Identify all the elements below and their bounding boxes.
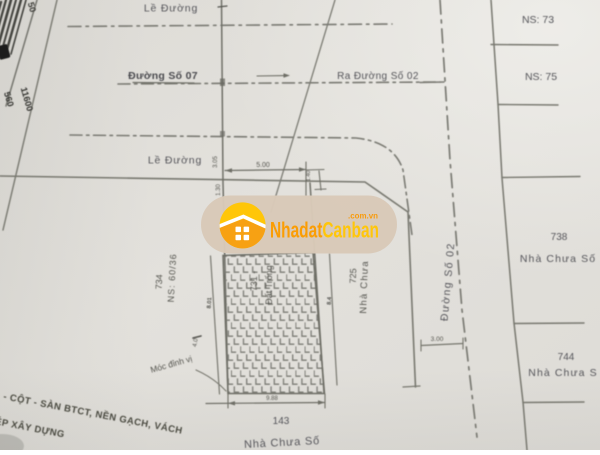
- svg-text:1.40: 1.40: [306, 171, 312, 182]
- svg-text:Nhà Chưa S: Nhà Chưa S: [528, 367, 597, 379]
- svg-text:143: 143: [273, 416, 290, 427]
- svg-text:Đất Trống: Đất Trống: [264, 265, 274, 305]
- svg-text:Nhà Chưa Số: Nhà Chưa Số: [520, 253, 596, 265]
- svg-text:1.30: 1.30: [216, 184, 222, 196]
- svg-text:Nhà Chưa: Nhà Chưa: [358, 260, 371, 314]
- svg-text:Ra Đường Số 02: Ra Đường Số 02: [337, 70, 419, 82]
- svg-text:738: 738: [551, 232, 568, 243]
- svg-text:5.00: 5.00: [256, 162, 270, 169]
- svg-text:744: 744: [558, 352, 575, 363]
- svg-text:NS: 75: NS: 75: [525, 71, 557, 83]
- svg-text:.com.vn: .com.vn: [348, 212, 378, 221]
- svg-text:8.4: 8.4: [327, 296, 334, 305]
- svg-text:NhadatCanban: NhadatCanban: [270, 218, 379, 243]
- svg-text:731 -: 731 -: [249, 271, 259, 292]
- svg-text:Lề Đường: Lề Đường: [148, 155, 202, 167]
- svg-text:3.00: 3.00: [431, 336, 444, 343]
- svg-text:9.88: 9.88: [266, 396, 278, 402]
- svg-text:725: 725: [348, 268, 359, 283]
- svg-text:Đường Số 07: Đường Số 07: [128, 70, 198, 82]
- svg-text:8.01: 8.01: [207, 296, 214, 308]
- svg-text:3.05: 3.05: [213, 156, 219, 168]
- svg-text:Lề Đường: Lề Đường: [144, 3, 198, 15]
- svg-text:734: 734: [154, 274, 165, 290]
- svg-text:NS: 73: NS: 73: [522, 14, 554, 26]
